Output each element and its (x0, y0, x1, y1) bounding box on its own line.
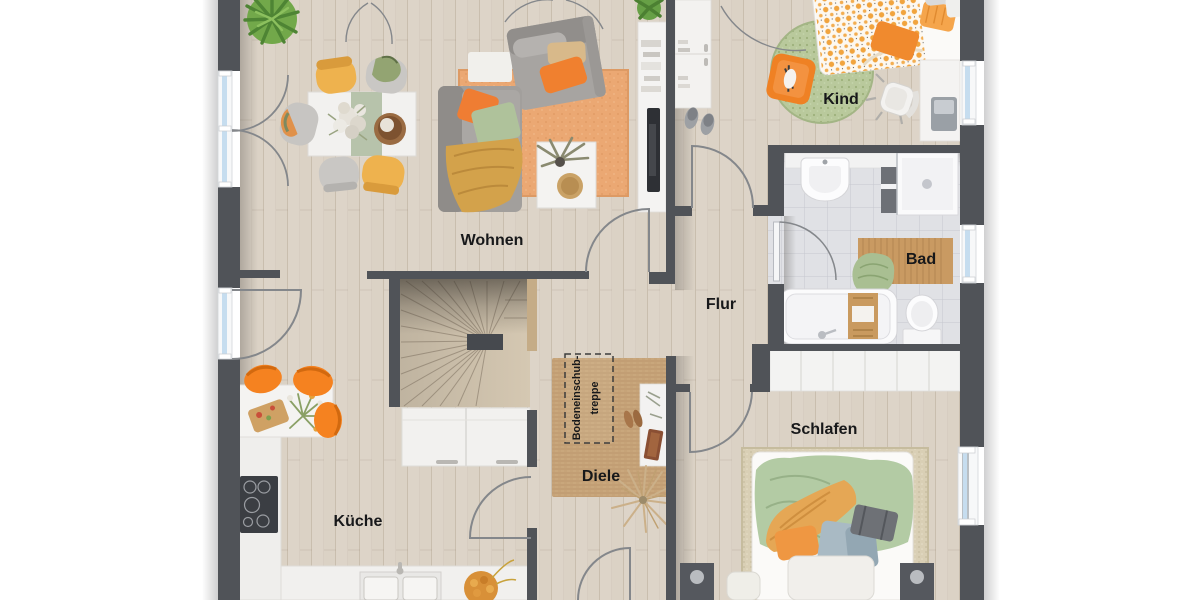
svg-text:Küche: Küche (334, 513, 383, 530)
svg-text:Kind: Kind (823, 91, 859, 108)
svg-text:treppe: treppe (589, 382, 601, 415)
svg-text:Diele: Diele (582, 468, 620, 485)
svg-text:Bad: Bad (906, 251, 936, 268)
svg-text:Schlafen: Schlafen (791, 421, 858, 438)
svg-text:Wohnen: Wohnen (461, 232, 524, 249)
svg-text:Flur: Flur (706, 296, 736, 313)
svg-text:Bodeneinschub-: Bodeneinschub- (571, 355, 583, 440)
